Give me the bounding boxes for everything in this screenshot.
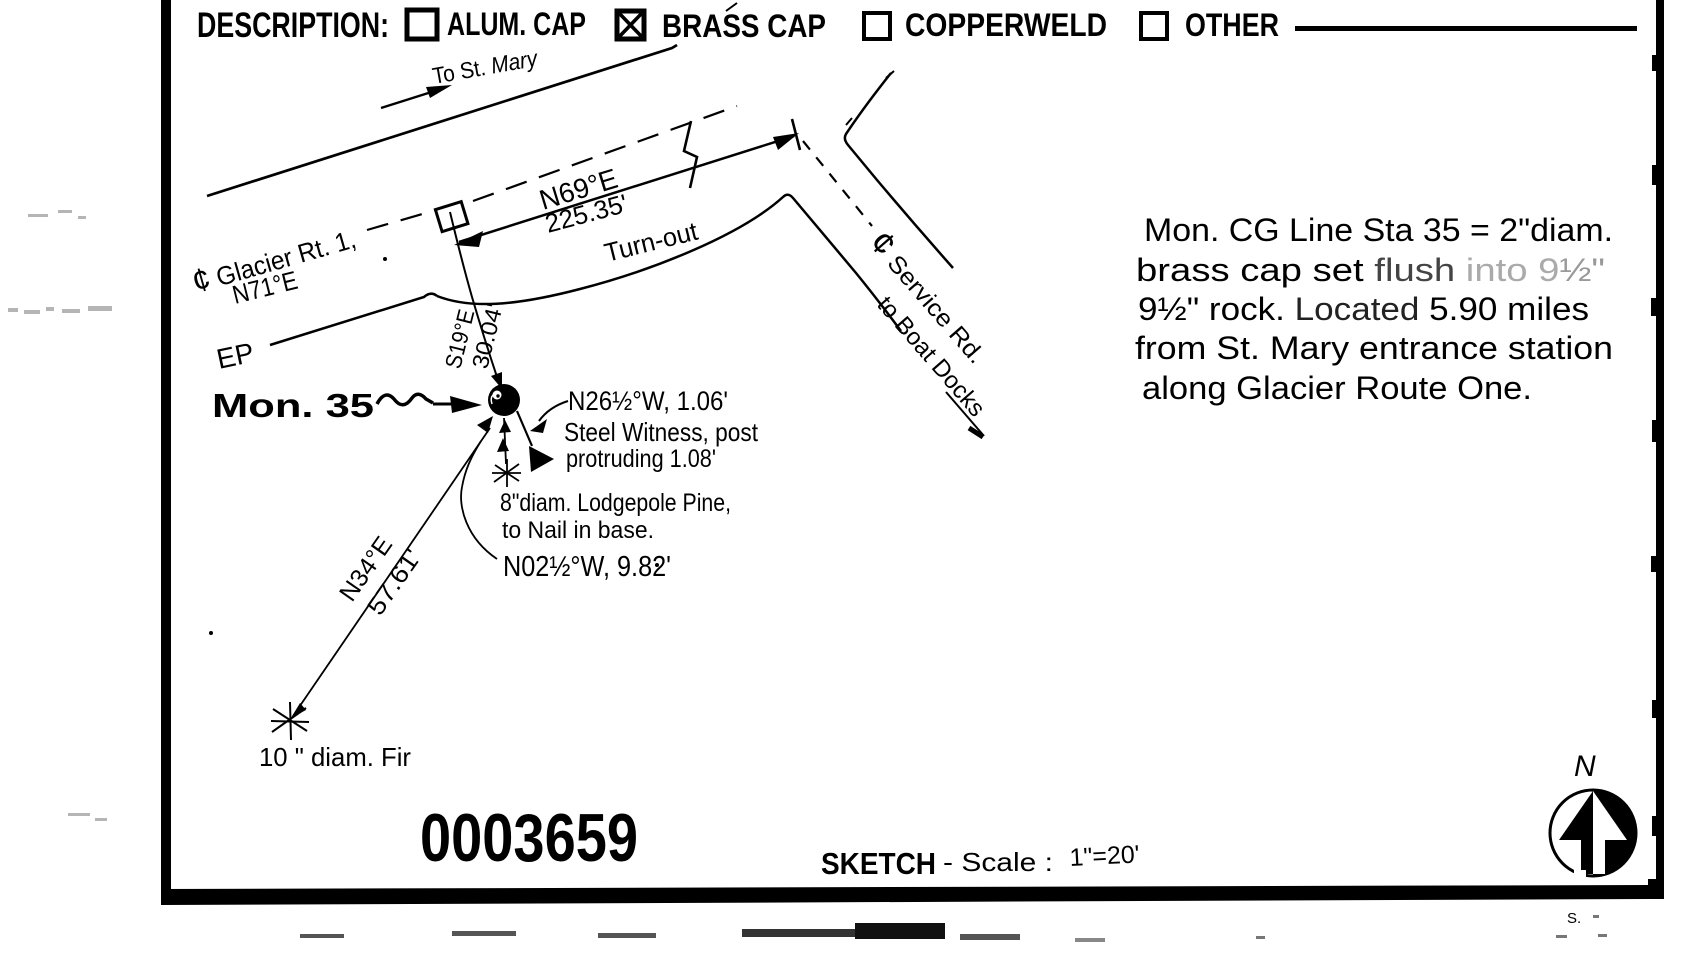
svg-text:Steel Witness, post: Steel Witness, post xyxy=(564,417,759,447)
svg-text:brass cap set flush into 9½": brass cap set flush into 9½" xyxy=(1136,252,1605,288)
svg-text:OTHER: OTHER xyxy=(1185,7,1279,43)
svg-text:0003659: 0003659 xyxy=(420,800,638,876)
svg-text:protruding 1.08': protruding 1.08' xyxy=(566,445,716,473)
svg-text:1"=20': 1"=20' xyxy=(1069,840,1140,872)
svg-text:BRASS CAP: BRASS CAP xyxy=(662,8,826,44)
svg-text:S.: S. xyxy=(1567,910,1581,927)
svg-text:Mon. CG Line Sta 35 = 2"diam.: Mon. CG Line Sta 35 = 2"diam. xyxy=(1144,212,1613,248)
svg-text:from St. Mary entrance station: from St. Mary entrance station xyxy=(1135,330,1613,366)
svg-text:N26½°W, 1.06': N26½°W, 1.06' xyxy=(568,386,728,416)
svg-text:SKETCH: SKETCH xyxy=(821,846,936,881)
svg-text:along Glacier Route One.: along Glacier Route One. xyxy=(1142,370,1532,406)
svg-text:Mon. 35: Mon. 35 xyxy=(212,387,374,424)
svg-text:to Nail in base.: to Nail in base. xyxy=(502,517,654,544)
svg-text:9½" rock. Located 5.90 miles: 9½" rock. Located 5.90 miles xyxy=(1138,291,1589,327)
svg-text:N02½°W, 9.82': N02½°W, 9.82' xyxy=(503,551,671,583)
svg-text:10 " diam. Fir: 10 " diam. Fir xyxy=(259,742,411,772)
svg-text:- Scale :: - Scale : xyxy=(943,847,1053,877)
svg-text:DESCRIPTION:: DESCRIPTION: xyxy=(197,6,389,45)
svg-text:8"diam. Lodgepole Pine,: 8"diam. Lodgepole Pine, xyxy=(500,489,731,517)
svg-text:ALUM. CAP: ALUM. CAP xyxy=(447,6,586,42)
svg-text:COPPERWELD: COPPERWELD xyxy=(905,7,1107,43)
svg-text:N: N xyxy=(1574,750,1596,783)
